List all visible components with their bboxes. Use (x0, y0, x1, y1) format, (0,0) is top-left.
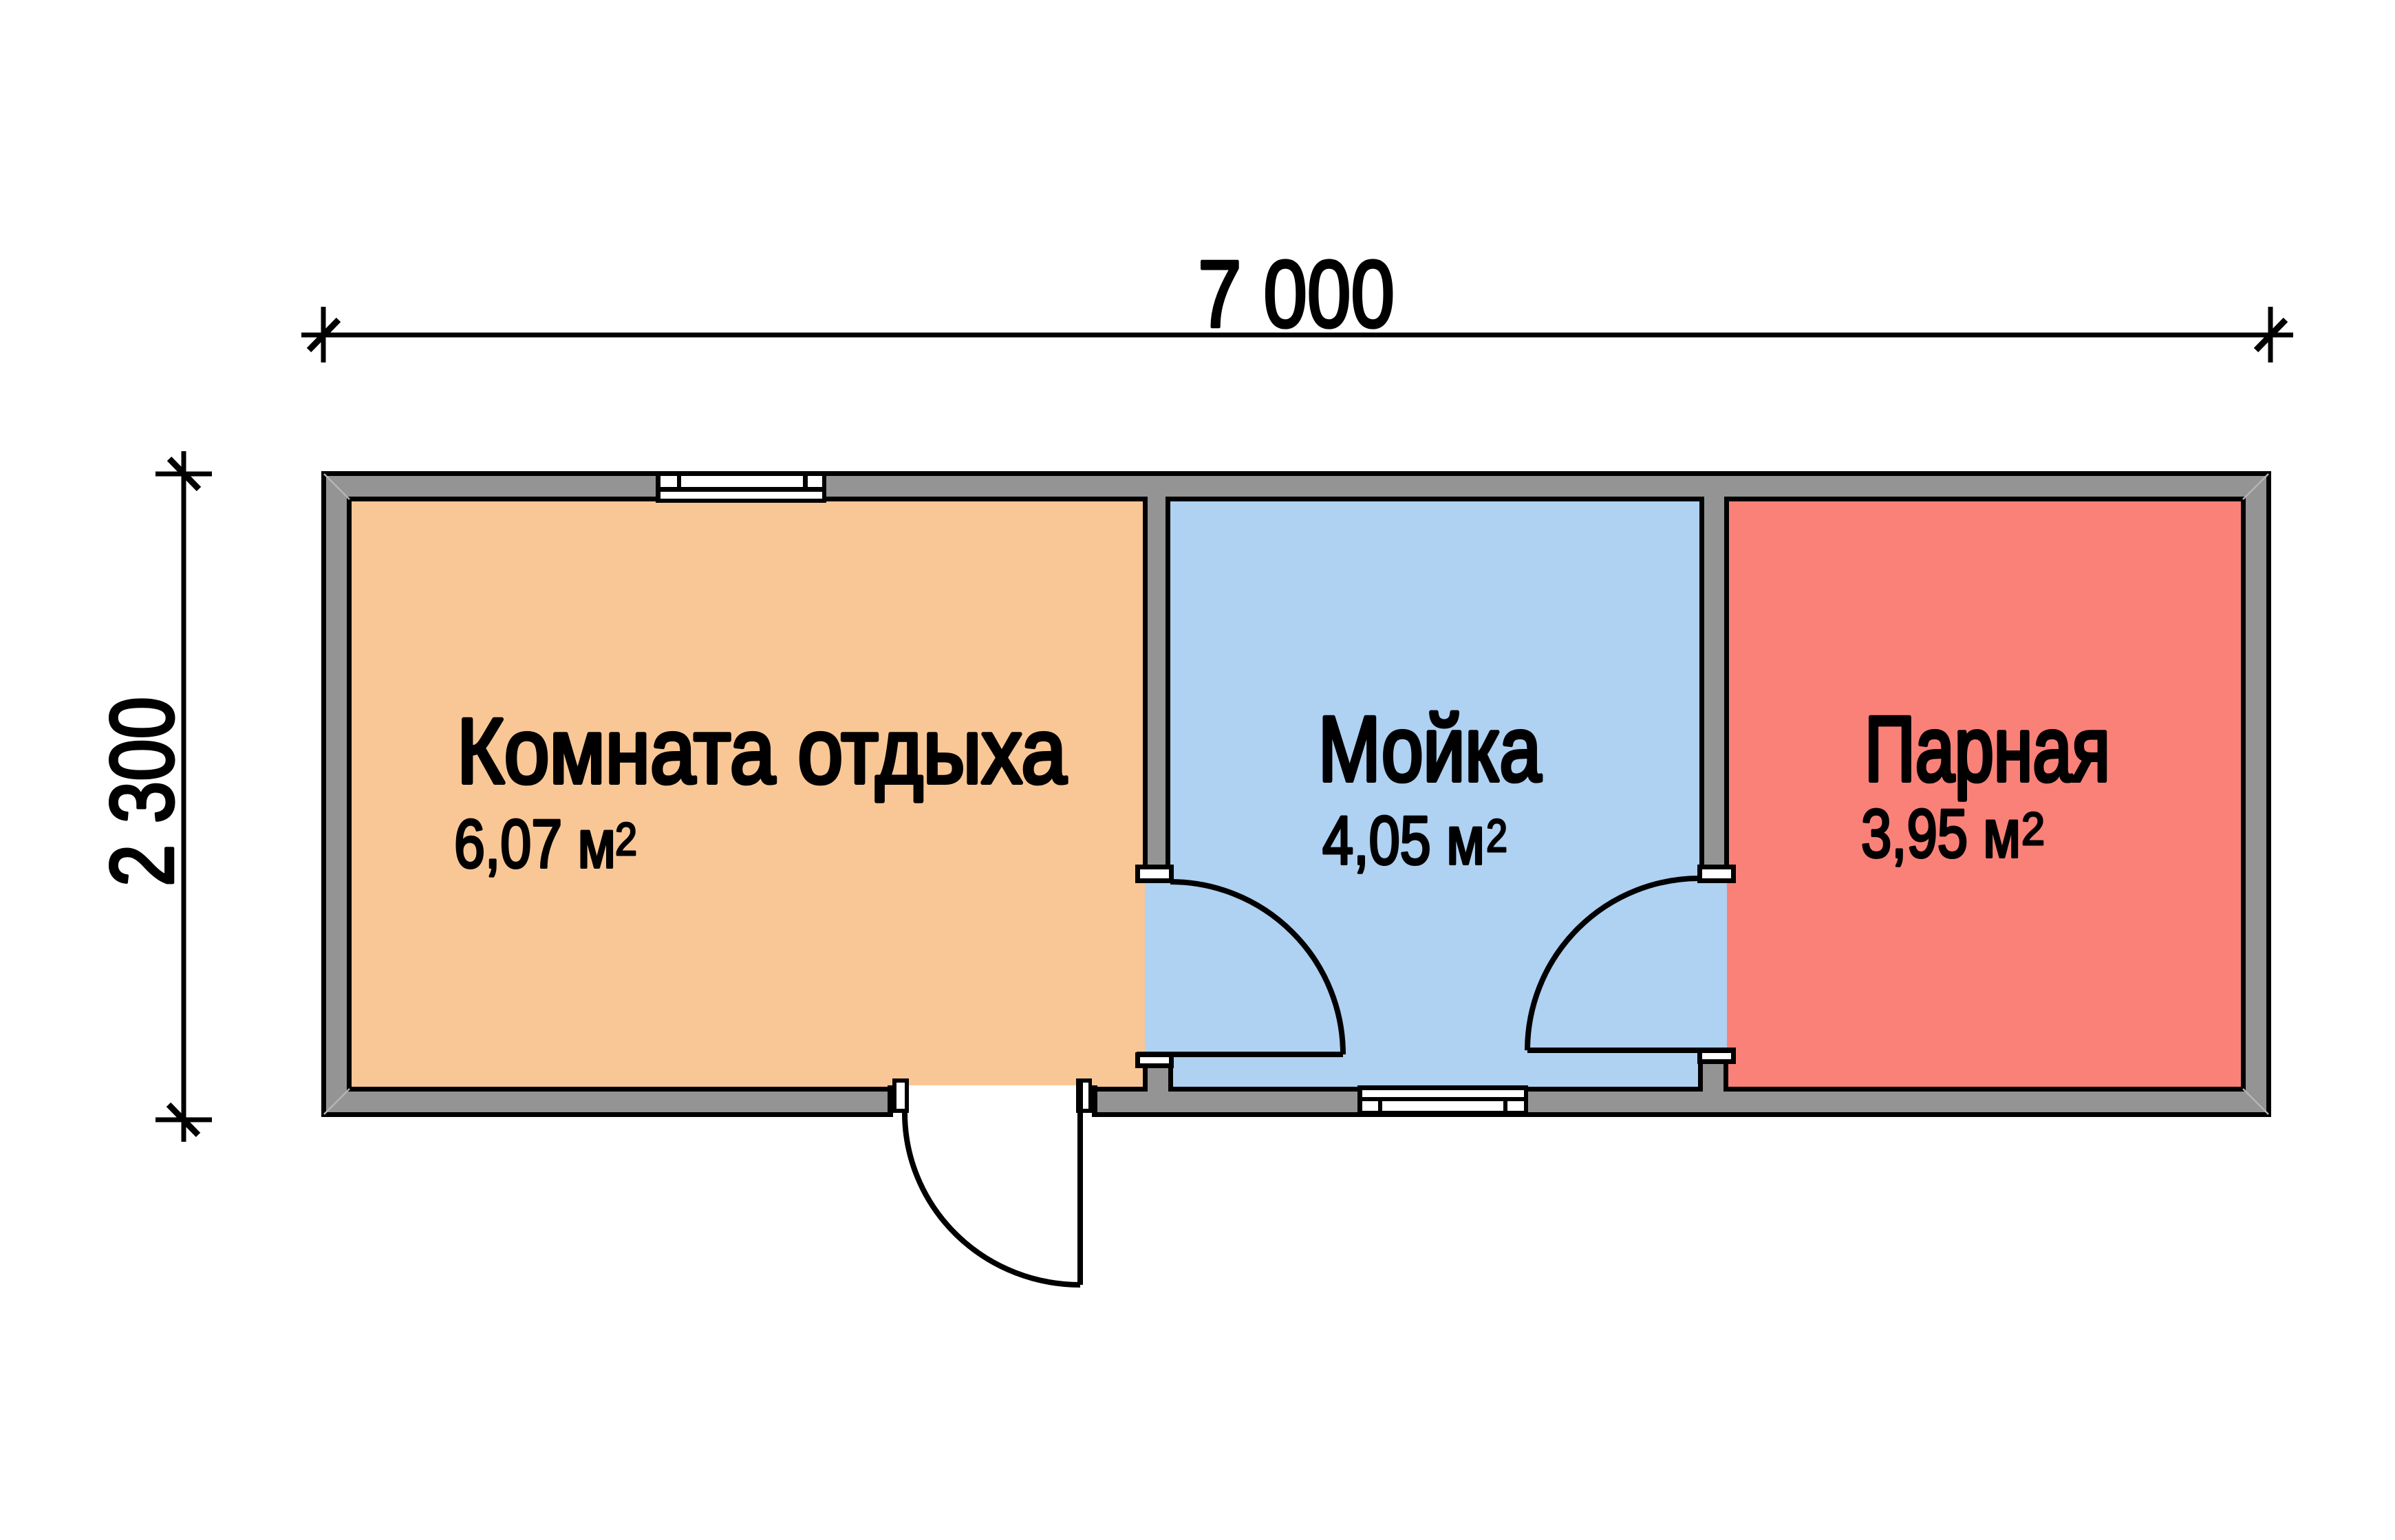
svg-text:2: 2 (1486, 810, 1507, 862)
svg-text:2: 2 (2021, 803, 2045, 855)
svg-text:2: 2 (615, 814, 637, 865)
svg-text:2 300: 2 300 (92, 697, 192, 887)
svg-text:Парная: Парная (1865, 698, 2110, 801)
svg-text:Мойка: Мойка (1318, 698, 1541, 801)
svg-text:3,95 м: 3,95 м (1861, 795, 2021, 871)
svg-text:7 000: 7 000 (1198, 241, 1395, 347)
svg-text:4,05 м: 4,05 м (1322, 802, 1485, 878)
svg-text:Комната отдыха: Комната отдыха (457, 700, 1066, 803)
svg-text:6,07 м: 6,07 м (454, 805, 616, 882)
